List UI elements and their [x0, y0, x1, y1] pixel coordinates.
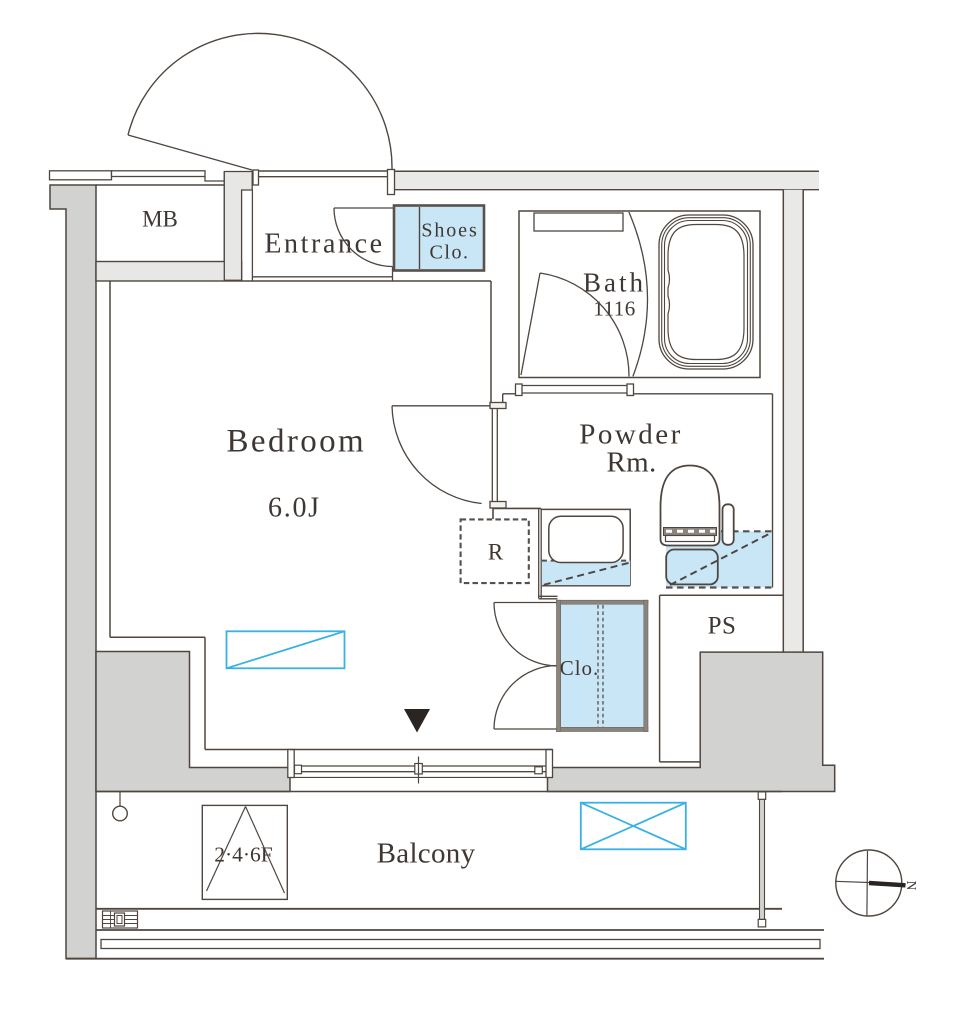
svg-text:N: N: [904, 881, 919, 891]
svg-text:2·4·6F: 2·4·6F: [214, 843, 273, 867]
svg-text:1116: 1116: [593, 297, 635, 321]
svg-text:6.0J: 6.0J: [268, 493, 321, 524]
svg-text:Rm.: Rm.: [606, 447, 656, 479]
svg-text:R: R: [488, 540, 504, 565]
svg-text:Bedroom: Bedroom: [226, 424, 366, 460]
svg-text:Shoes: Shoes: [421, 220, 478, 242]
svg-text:MB: MB: [142, 207, 178, 232]
svg-text:Bath: Bath: [583, 268, 646, 298]
svg-text:Clo.: Clo.: [430, 242, 470, 264]
svg-text:Entrance: Entrance: [264, 229, 384, 260]
svg-text:Balcony: Balcony: [377, 838, 476, 870]
svg-text:PS: PS: [708, 613, 737, 640]
svg-text:Clo.: Clo.: [560, 656, 600, 680]
